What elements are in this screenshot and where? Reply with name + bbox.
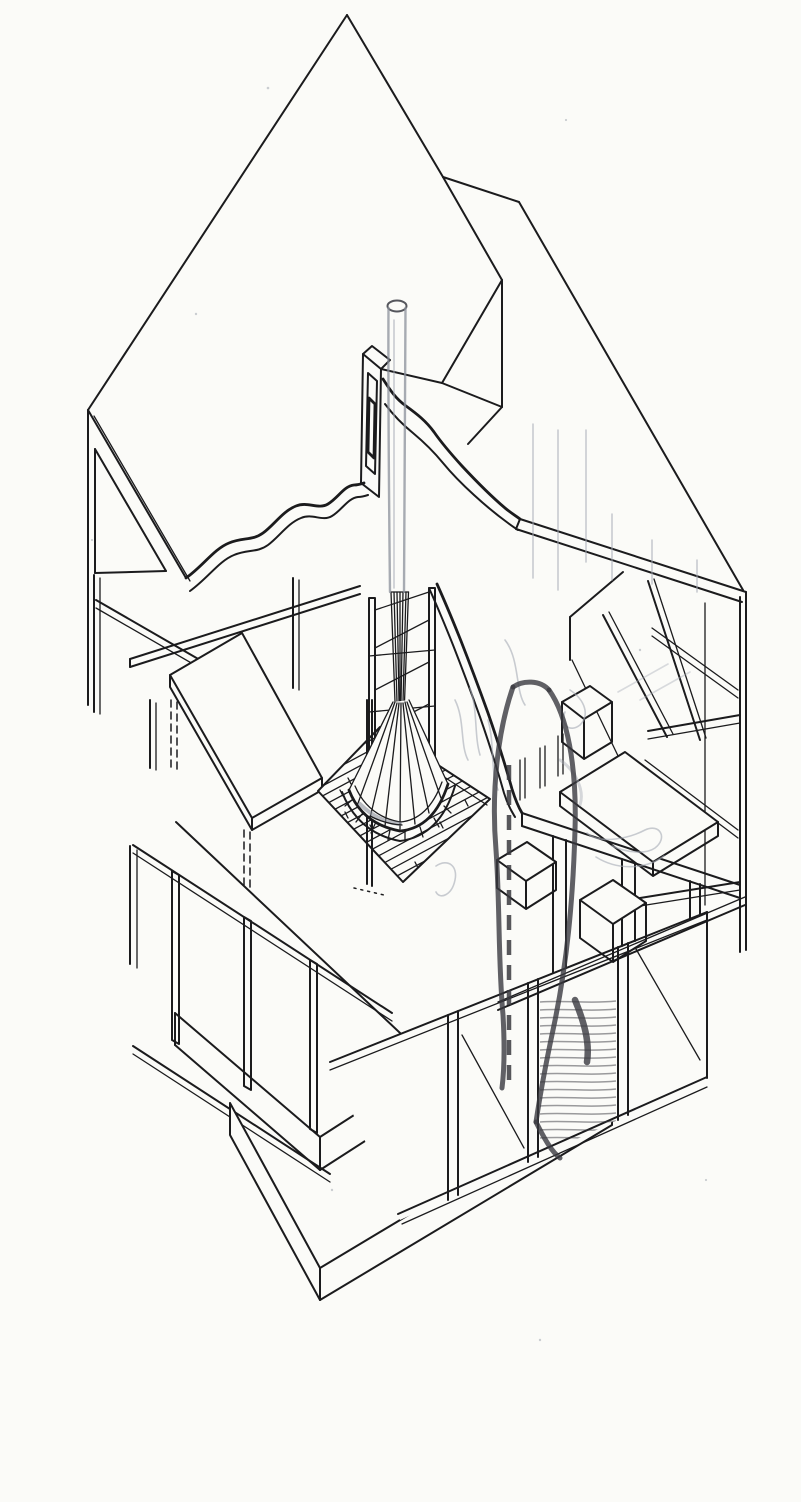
right-wall-frame [516,519,746,952]
attic-interior [522,572,740,898]
scanned-drawing-page: Axonometric cutaway ink drawing of a tal… [0,0,801,1502]
flue-bundle [391,592,409,702]
roof-plane-fills [88,15,743,590]
fireplace-hood-cone [342,700,455,841]
axonometric-house-cutaway-drawing: Axonometric cutaway ink drawing of a tal… [0,0,801,1502]
